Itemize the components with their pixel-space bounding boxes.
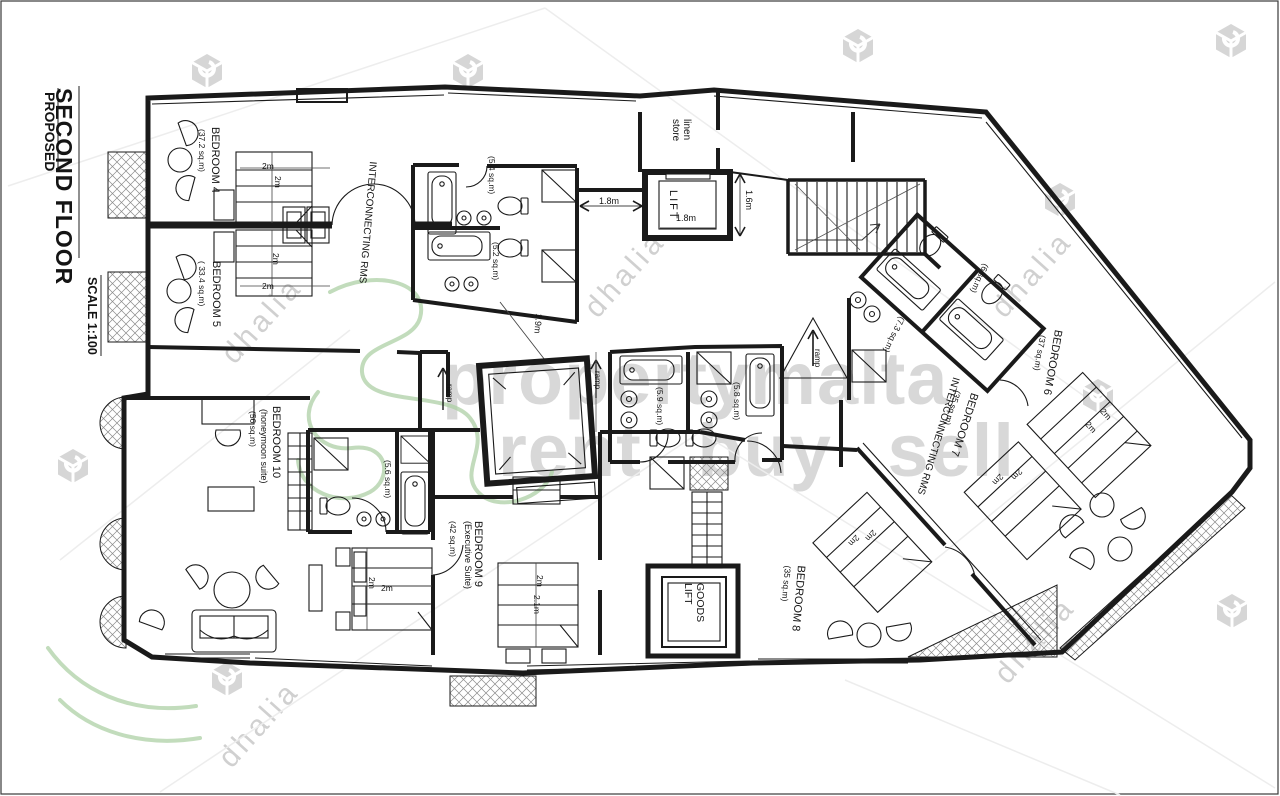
dim-bed4-length: 2m [272, 176, 282, 188]
dim-bed5-length: 2m [270, 253, 280, 265]
bedroom4-5-partition [148, 184, 452, 353]
bedroom8-chairs [826, 619, 914, 647]
staircase [788, 112, 940, 268]
bedroom6-chairs [1055, 493, 1150, 570]
bedroom10-subtitle: (honeymoon suite) [259, 409, 269, 484]
dim-lift-width-inner: 1.8m [676, 213, 696, 223]
bedroom10-name: BEDROOM 10 [270, 406, 282, 478]
goods-lift-label: GOODS LIFT [682, 583, 706, 622]
ramp-label-left: ramp [444, 384, 453, 402]
ramp-right [780, 318, 847, 378]
ramp-label-centre: ramp [592, 371, 601, 389]
bedroom9-subtitle: (Executive Suite) [463, 521, 473, 589]
bath5-area: (5.9 sq.m) [654, 387, 664, 425]
corridor-left [395, 352, 480, 430]
bedroom8-walls [600, 432, 1041, 655]
bathrooms-right-angled [861, 207, 1050, 391]
bedroom4-name: BEDROOM 4 [209, 127, 221, 193]
dim-lift-depth: 1.6m [744, 190, 754, 210]
dim-bed10-width: 2m [381, 584, 393, 594]
bath1-area: (5.4 sq.m) [486, 156, 496, 194]
floor-plan-drawing [0, 0, 1280, 796]
bedroom4-area: (37.2 sq.m) [196, 129, 206, 172]
bedroom9-walls [433, 430, 600, 655]
bedroom5-area: ( 33.4 sq.m) [196, 261, 206, 306]
dim-bed9-length: 2.1m [531, 595, 541, 614]
skylight-void [479, 358, 597, 505]
floor-plan-page: propertymalta rent buy sell dhalia dhali… [0, 0, 1280, 796]
bedroom5-name: BEDROOM 5 [210, 261, 222, 327]
bedroom9-name: BEDROOM 9 [472, 521, 484, 587]
bath6-area: (5.8 sq.m) [731, 382, 741, 420]
ramp-label-right: ramp [812, 349, 821, 367]
proposed-label: PROPOSED [41, 92, 57, 171]
bath7-area: (5.6 sq.m) [382, 460, 392, 498]
dim-bed10-length: 2m [366, 577, 376, 589]
linen-store-label: linen store [670, 119, 692, 141]
wardrobe-bedroom8 [692, 492, 722, 568]
dim-lift-width: 1.8m [599, 196, 619, 206]
bedroom8-area: (35 sq.m) [779, 565, 792, 602]
bedroom9-area: (42 sq.m) [447, 521, 457, 557]
bedroom7-bed [964, 442, 1081, 560]
dim-bed4-width: 2m [262, 162, 274, 172]
dim-bed9-width: 2m [534, 575, 544, 587]
dim-bed5-width: 2m [262, 282, 274, 292]
bath2-area: (5.2 sq.m) [490, 242, 500, 280]
dim-corridor: 1.9m [532, 313, 544, 334]
bedroom10-area: (56 sq.m) [247, 411, 257, 447]
bedroom10-furniture [139, 398, 432, 652]
scale-label: SCALE 1:100 [85, 277, 99, 355]
